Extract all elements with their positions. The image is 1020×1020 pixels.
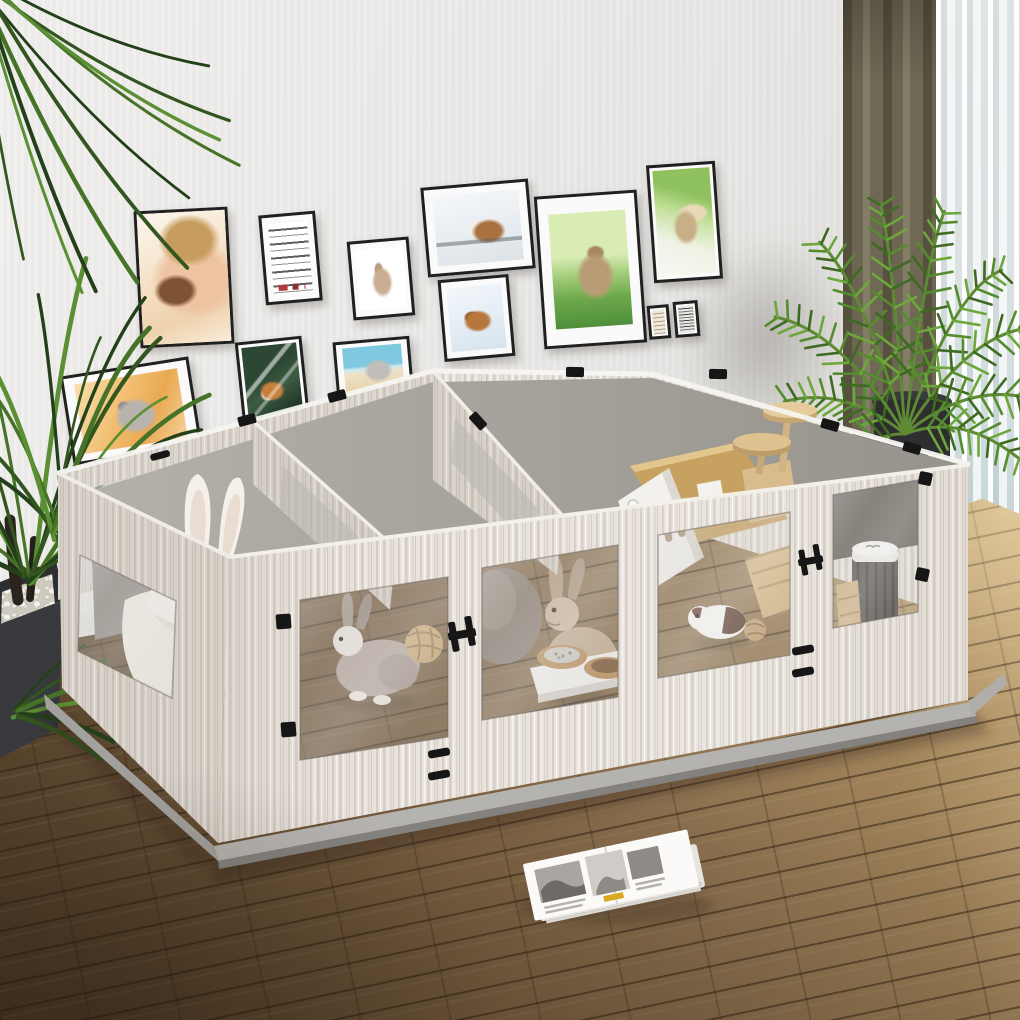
pet-playpen	[38, 367, 1007, 884]
magazine	[518, 828, 714, 926]
room-scene	[0, 0, 1020, 1020]
